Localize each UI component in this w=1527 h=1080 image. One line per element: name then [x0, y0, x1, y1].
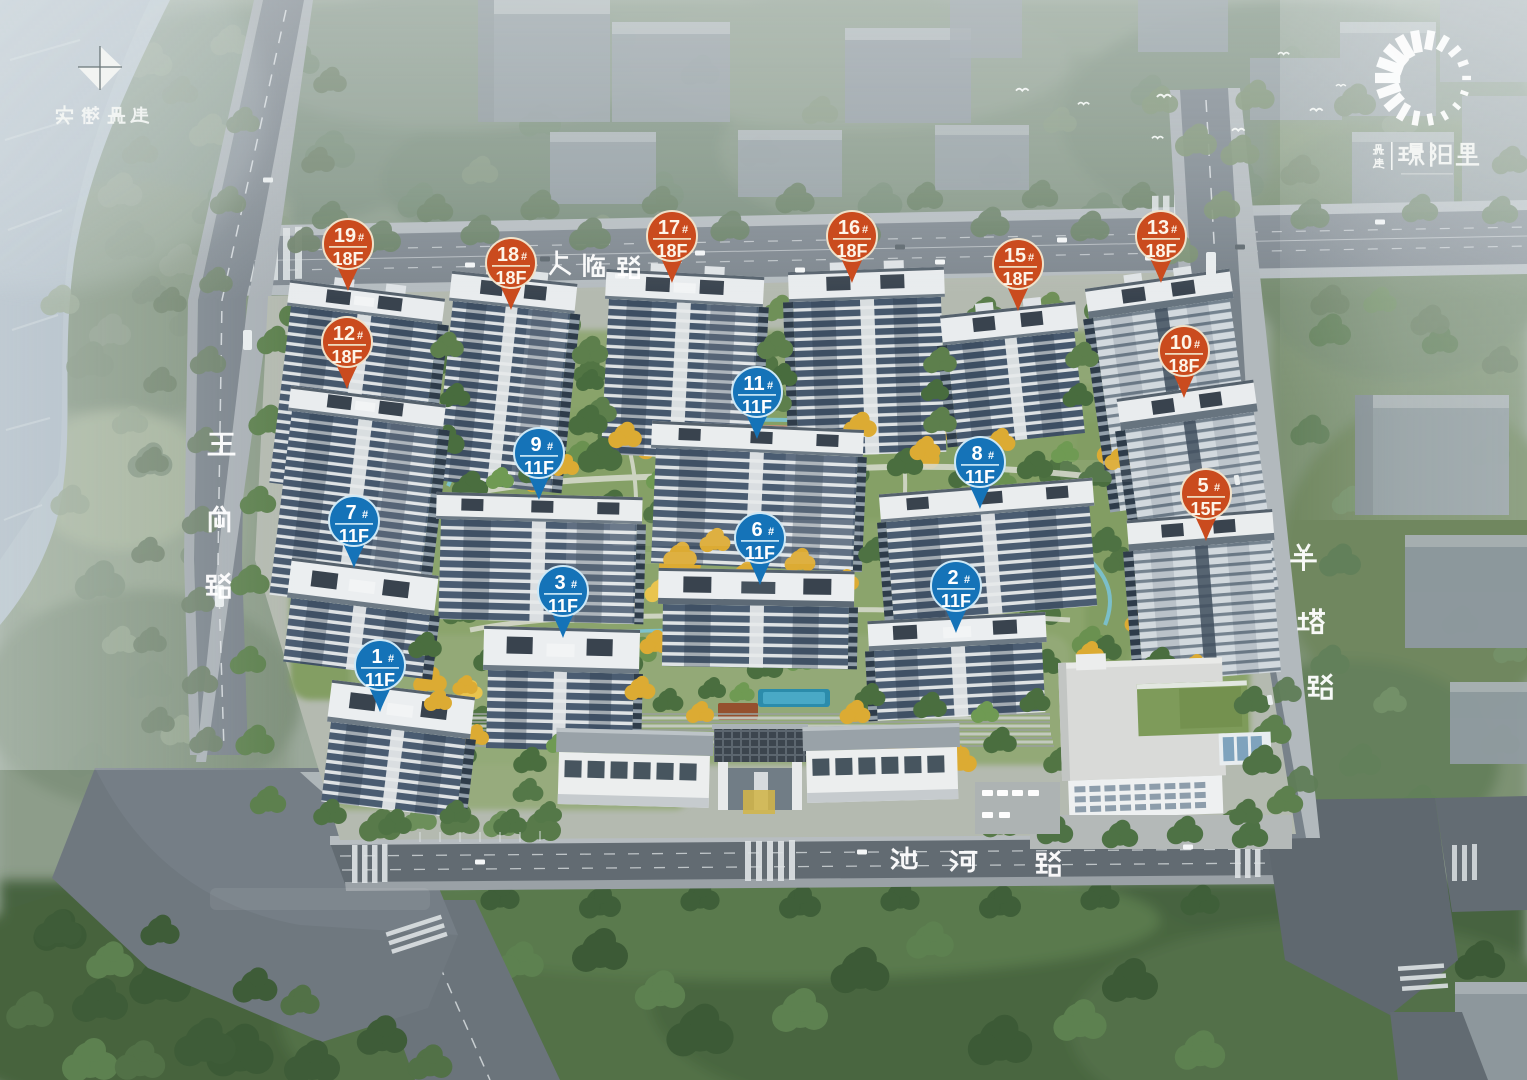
svg-text:#: #	[1171, 224, 1177, 236]
svg-text:7: 7	[345, 502, 356, 524]
svg-text:#: #	[362, 509, 368, 521]
svg-text:10: 10	[1170, 332, 1192, 354]
svg-text:#: #	[768, 526, 774, 538]
svg-text:#: #	[1194, 339, 1200, 351]
svg-text:11: 11	[743, 373, 764, 395]
svg-text:11F: 11F	[548, 596, 578, 616]
svg-text:#: #	[357, 330, 363, 342]
svg-text:18F: 18F	[1002, 269, 1033, 289]
svg-text:11F: 11F	[742, 397, 772, 417]
svg-text:9: 9	[530, 434, 541, 456]
svg-text:11F: 11F	[339, 526, 369, 546]
svg-text:18F: 18F	[656, 241, 687, 261]
svg-text:19: 19	[334, 225, 356, 247]
svg-text:15F: 15F	[1190, 499, 1221, 519]
svg-text:17: 17	[658, 217, 680, 239]
svg-text:8: 8	[971, 443, 982, 465]
svg-text:#: #	[964, 574, 970, 586]
svg-text:#: #	[547, 441, 553, 453]
svg-text:18F: 18F	[1145, 241, 1176, 261]
svg-text:13: 13	[1147, 217, 1169, 239]
svg-text:#: #	[767, 380, 773, 392]
svg-text:15: 15	[1004, 245, 1026, 267]
svg-text:#: #	[988, 450, 994, 462]
svg-text:11F: 11F	[941, 591, 971, 611]
svg-text:16: 16	[838, 217, 860, 239]
svg-text:#: #	[358, 232, 364, 244]
svg-text:1: 1	[371, 646, 382, 668]
svg-text:#: #	[388, 653, 394, 665]
svg-text:#: #	[1028, 252, 1034, 264]
svg-text:18F: 18F	[1168, 356, 1199, 376]
svg-text:18F: 18F	[495, 268, 526, 288]
svg-text:18F: 18F	[836, 241, 867, 261]
svg-text:11F: 11F	[524, 458, 554, 478]
svg-text:18: 18	[497, 244, 519, 266]
svg-text:11F: 11F	[365, 670, 395, 690]
svg-text:6: 6	[751, 519, 762, 541]
svg-text:#: #	[521, 251, 527, 263]
svg-text:12: 12	[333, 323, 355, 345]
svg-text:#: #	[862, 224, 868, 236]
svg-text:18F: 18F	[331, 347, 362, 367]
svg-text:#: #	[682, 224, 688, 236]
svg-text:#: #	[571, 579, 577, 591]
svg-text:3: 3	[554, 572, 565, 594]
svg-text:11F: 11F	[965, 467, 995, 487]
svg-text:18F: 18F	[332, 249, 363, 269]
svg-text:5: 5	[1197, 475, 1208, 497]
svg-text:11F: 11F	[745, 543, 775, 563]
svg-text:#: #	[1214, 482, 1220, 494]
svg-text:2: 2	[947, 567, 958, 589]
